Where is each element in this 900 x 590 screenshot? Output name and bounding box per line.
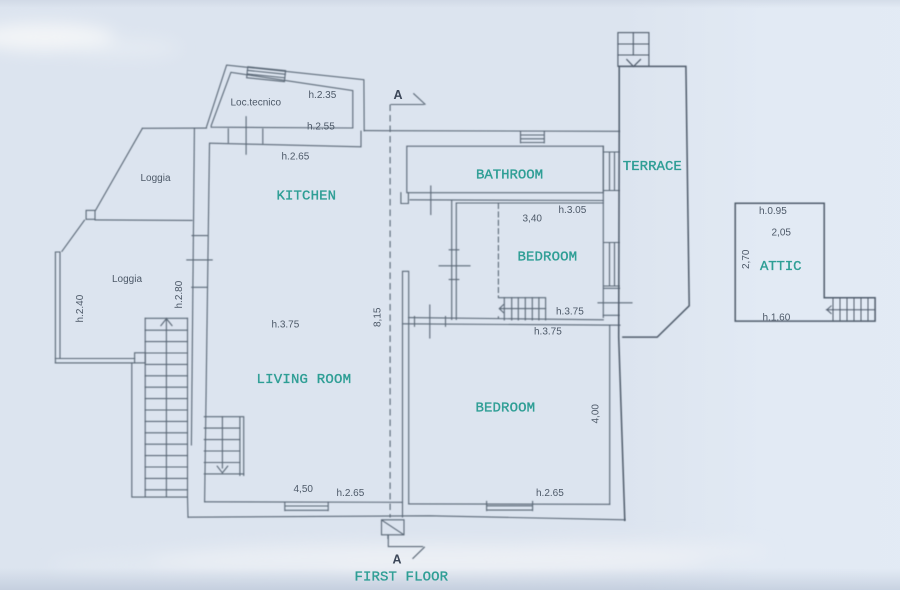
svg-text:A: A — [393, 553, 402, 567]
svg-text:ATTIC: ATTIC — [760, 259, 802, 275]
svg-text:8,15: 8,15 — [373, 307, 384, 327]
svg-text:Loc.tecnico: Loc.tecnico — [231, 98, 282, 109]
svg-text:h.2.55: h.2.55 — [307, 122, 335, 133]
svg-text:h.2.65: h.2.65 — [337, 488, 365, 499]
svg-text:h.1.60: h.1.60 — [763, 313, 791, 324]
svg-text:Loggia: Loggia — [112, 274, 142, 285]
svg-text:2,70: 2,70 — [741, 249, 752, 269]
svg-text:BATHROOM: BATHROOM — [476, 168, 543, 184]
svg-text:LIVING ROOM: LIVING ROOM — [257, 372, 352, 388]
svg-text:A: A — [394, 88, 403, 102]
svg-text:h.0.95: h.0.95 — [759, 206, 787, 217]
svg-text:h.3.05: h.3.05 — [559, 205, 587, 216]
svg-text:TERRACE: TERRACE — [623, 159, 682, 175]
svg-text:FIRST FLOOR: FIRST FLOOR — [355, 570, 449, 586]
svg-text:h.3.75: h.3.75 — [534, 327, 562, 338]
svg-text:h.2.35: h.2.35 — [309, 90, 337, 101]
svg-text:h.3.75: h.3.75 — [272, 320, 300, 331]
svg-text:4,50: 4,50 — [294, 484, 314, 495]
svg-text:3,40: 3,40 — [523, 214, 543, 225]
svg-text:BEDROOM: BEDROOM — [518, 250, 578, 266]
svg-text:h.2.40: h.2.40 — [75, 294, 86, 322]
svg-text:BEDROOM: BEDROOM — [476, 401, 536, 417]
svg-text:KITCHEN: KITCHEN — [277, 189, 337, 205]
svg-text:h.2.65: h.2.65 — [282, 152, 310, 163]
svg-text:2,05: 2,05 — [772, 228, 792, 239]
svg-text:4,00: 4,00 — [591, 404, 602, 424]
svg-text:h.2.65: h.2.65 — [536, 488, 564, 499]
svg-text:h.3.75: h.3.75 — [556, 307, 584, 318]
svg-text:h.2.80: h.2.80 — [174, 280, 185, 308]
svg-text:Loggia: Loggia — [141, 173, 171, 184]
